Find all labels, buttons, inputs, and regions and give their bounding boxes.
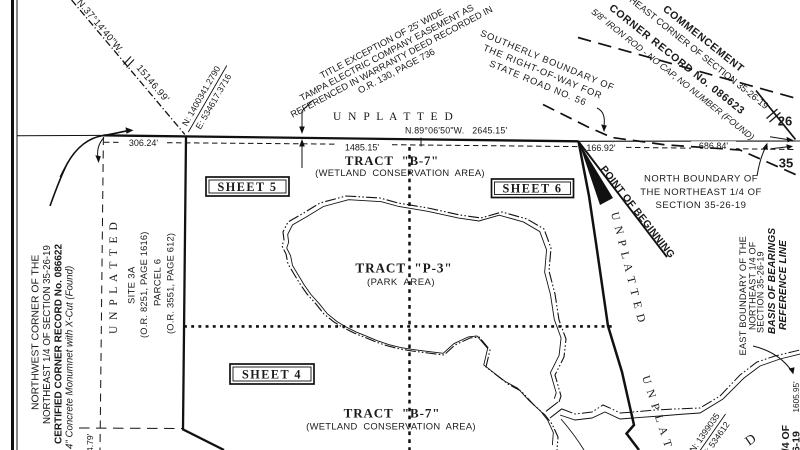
- svg-text:SHEET 6: SHEET 6: [502, 182, 562, 196]
- svg-text:U N P L A T T E D: U N P L A T T E D: [108, 221, 120, 334]
- svg-text:BASIS OF BEARINGS: BASIS OF BEARINGS: [767, 228, 778, 334]
- svg-text:SHEET 5: SHEET 5: [217, 180, 277, 194]
- svg-text:THE NORTHEAST 1/4 OF: THE NORTHEAST 1/4 OF: [640, 187, 762, 198]
- svg-text:(O.R. 3551, PAGE 612): (O.R. 3551, PAGE 612): [166, 233, 176, 334]
- svg-text:TRACT "P-3": TRACT "P-3": [355, 261, 452, 276]
- svg-text:(WETLAND CONSERVATION AREA): (WETLAND CONSERVATION AREA): [306, 421, 476, 432]
- svg-text:1485.15': 1485.15': [345, 143, 380, 153]
- svg-text:SITE 3A: SITE 3A: [127, 266, 138, 304]
- svg-text:SECTION 35-26-19: SECTION 35-26-19: [656, 200, 747, 211]
- svg-text:26: 26: [778, 114, 792, 129]
- svg-text:TRACT "B-7": TRACT "B-7": [344, 406, 441, 421]
- svg-text:U N P L A T T E D: U N P L A T T E D: [333, 111, 455, 123]
- svg-text:NORTH BOUNDARY OF: NORTH BOUNDARY OF: [644, 174, 758, 185]
- svg-text:CERTIFIED CORNER RECORD No. 08: CERTIFIED CORNER RECORD No. 086622: [54, 244, 65, 444]
- svg-text:N.89°06'50"W. 2645.15': N.89°06'50"W. 2645.15': [405, 126, 507, 136]
- svg-text:4" Concrete Monumnet with X-Cu: 4" Concrete Monumnet with X-Cut (Found): [65, 266, 76, 449]
- svg-text:REFERENCE LINE: REFERENCE LINE: [778, 240, 789, 330]
- svg-text:PARCEL 6: PARCEL 6: [153, 259, 164, 306]
- svg-text:NORTHWEST CORNER OF THE: NORTHWEST CORNER OF THE: [31, 255, 42, 410]
- svg-text:(O.R. 8251, PAGE 1616): (O.R. 8251, PAGE 1616): [139, 231, 149, 338]
- svg-text:1605.95': 1605.95': [792, 381, 800, 413]
- svg-text:(WETLAND CONSERVATION AREA): (WETLAND CONSERVATION AREA): [315, 167, 485, 178]
- svg-text:EAST BOUNDARY OF THE: EAST BOUNDARY OF THE: [738, 236, 748, 356]
- svg-text:166.92': 166.92': [586, 143, 616, 153]
- svg-text:686.84': 686.84': [699, 141, 729, 151]
- svg-text:26-19: 26-19: [791, 431, 800, 450]
- svg-text:(PARK AREA): (PARK AREA): [367, 277, 435, 288]
- svg-text:35: 35: [779, 156, 793, 171]
- svg-text:SHEET 4: SHEET 4: [242, 368, 302, 382]
- svg-text:SECTION 35-26-19: SECTION 35-26-19: [756, 251, 766, 333]
- svg-text:4.79': 4.79': [85, 433, 95, 450]
- svg-text:NORTHEAST 1/4 OF SECTION 35-26: NORTHEAST 1/4 OF SECTION 35-26-19: [42, 245, 53, 424]
- svg-text:306.24': 306.24': [129, 138, 159, 148]
